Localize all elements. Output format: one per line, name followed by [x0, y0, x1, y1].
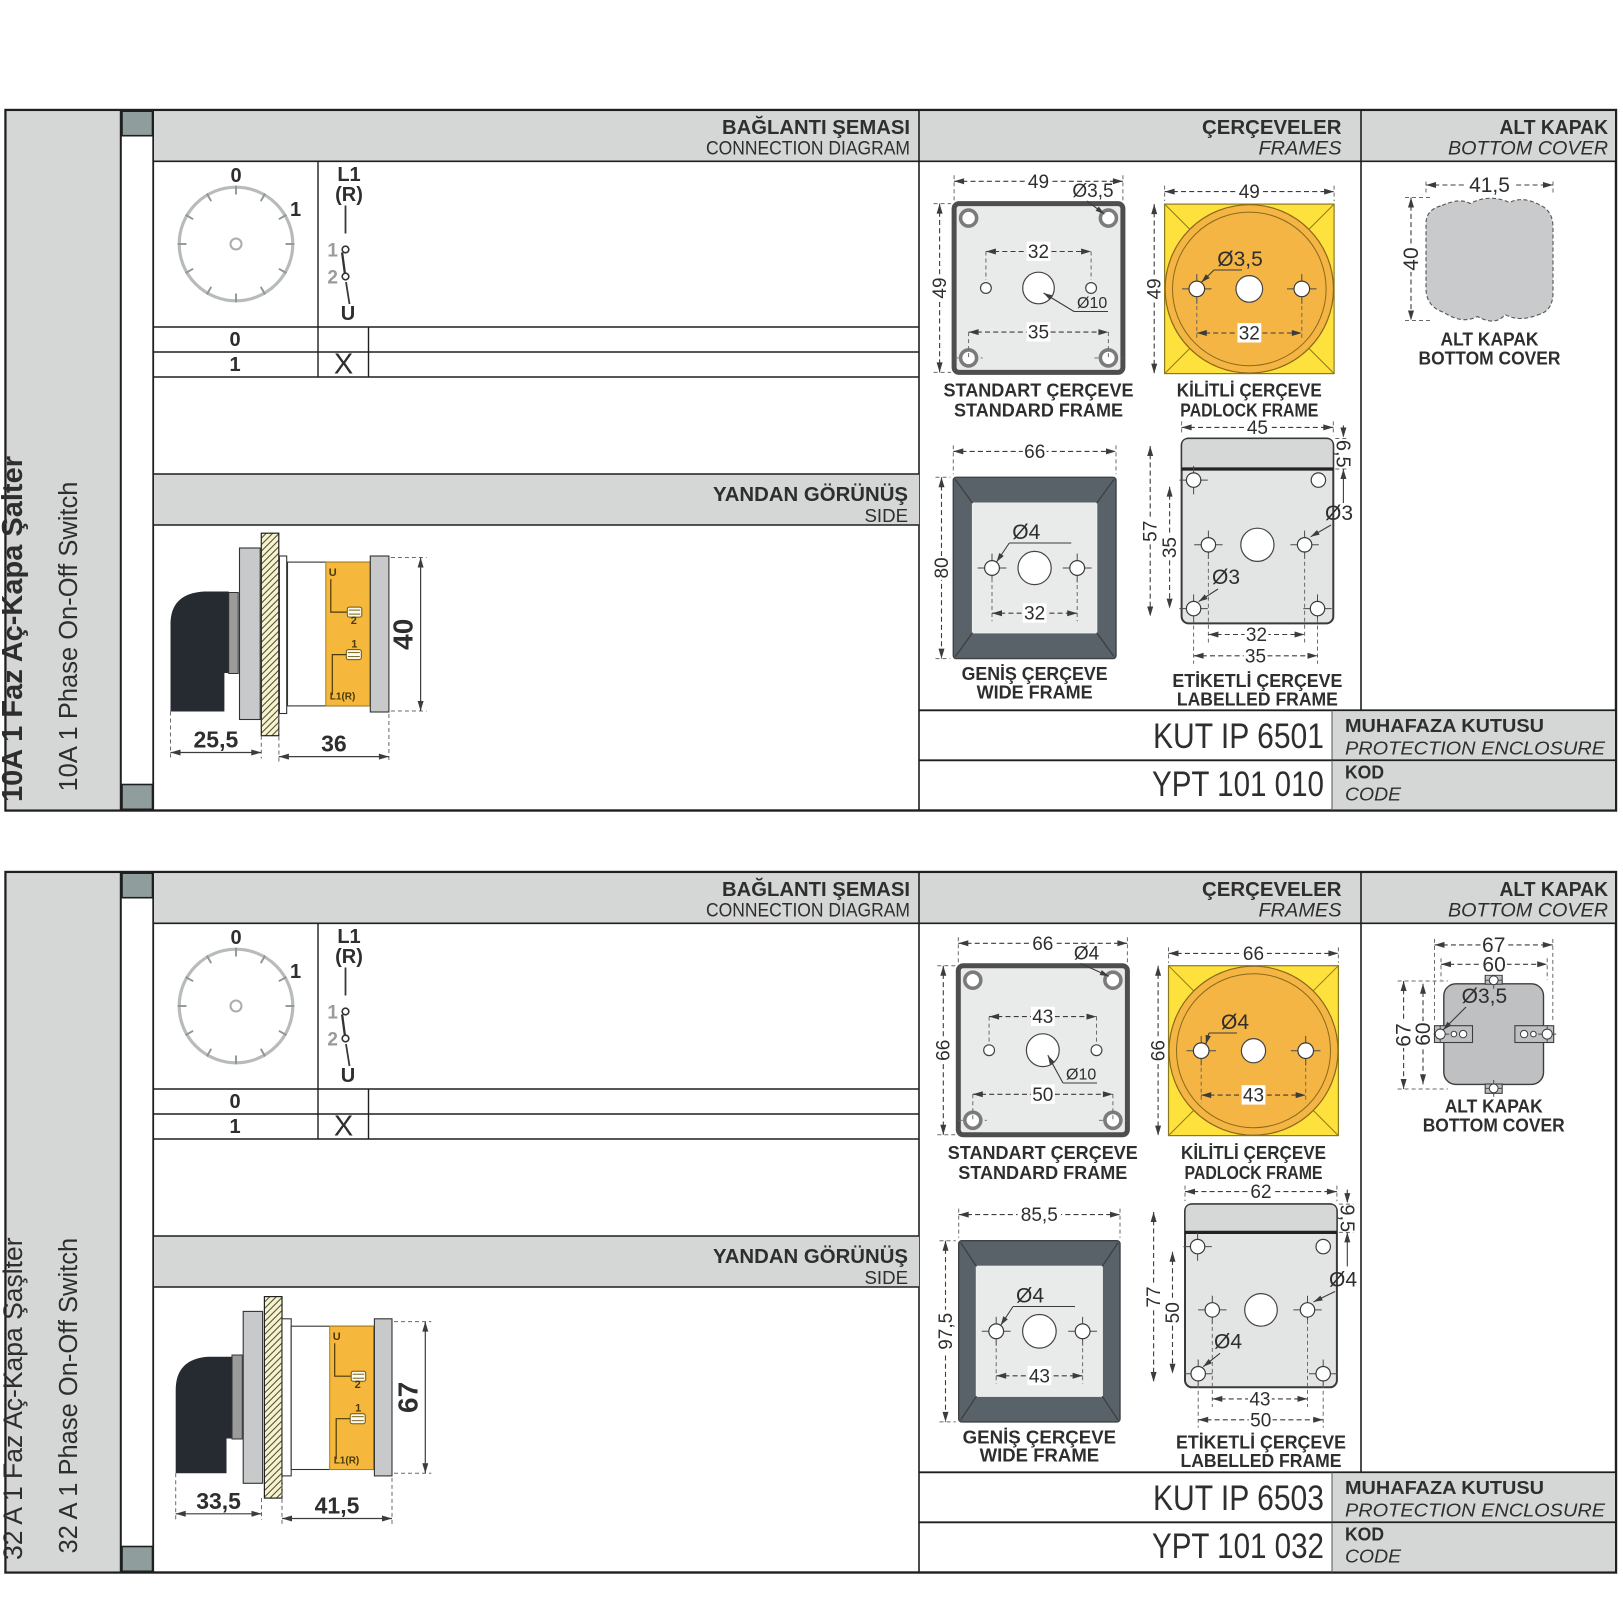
svg-text:STANDARD FRAME: STANDARD FRAME [954, 400, 1123, 420]
svg-text:L1(R): L1(R) [334, 1456, 360, 1467]
svg-text:77: 77 [1144, 1286, 1165, 1307]
svg-text:33,5: 33,5 [196, 1488, 241, 1514]
svg-text:66: 66 [934, 1040, 955, 1061]
svg-text:Ø4: Ø4 [1214, 1330, 1242, 1353]
svg-text:40: 40 [388, 619, 419, 650]
svg-text:PADLOCK FRAME: PADLOCK FRAME [1185, 1163, 1323, 1183]
svg-text:STANDART ÇERÇEVE: STANDART ÇERÇEVE [948, 1143, 1138, 1163]
svg-text:LABELLED FRAME: LABELLED FRAME [1177, 690, 1338, 710]
svg-text:2: 2 [327, 268, 338, 289]
svg-text:43: 43 [1032, 1007, 1053, 1028]
svg-text:1: 1 [290, 961, 301, 983]
svg-text:0: 0 [229, 1091, 240, 1113]
svg-text:YANDAN GÖRÜNÜŞ: YANDAN GÖRÜNÜŞ [713, 1245, 908, 1268]
svg-text:CONNECTION DIAGRAM: CONNECTION DIAGRAM [706, 138, 910, 159]
svg-text:41,5: 41,5 [315, 1493, 360, 1519]
svg-text:60: 60 [1412, 1022, 1435, 1045]
svg-text:Ø3,5: Ø3,5 [1462, 985, 1508, 1008]
svg-text:50: 50 [1250, 1410, 1271, 1431]
svg-text:35: 35 [1245, 646, 1266, 667]
svg-text:MUHAFAZA KUTUSU: MUHAFAZA KUTUSU [1345, 1478, 1544, 1498]
svg-text:35: 35 [1160, 537, 1181, 558]
svg-text:Ø4: Ø4 [1016, 1285, 1044, 1308]
svg-text:1: 1 [229, 354, 240, 376]
svg-text:YANDAN GÖRÜNÜŞ: YANDAN GÖRÜNÜŞ [713, 483, 908, 506]
svg-text:10A 1 Phase On-Off Switch: 10A 1 Phase On-Off Switch [55, 482, 83, 792]
svg-text:0: 0 [229, 329, 240, 351]
svg-text:YPT 101 010: YPT 101 010 [1152, 765, 1324, 804]
svg-text:0: 0 [230, 927, 241, 949]
svg-text:0: 0 [230, 165, 241, 187]
svg-text:25,5: 25,5 [194, 727, 239, 753]
svg-text:45: 45 [1247, 418, 1268, 439]
svg-text:9,5: 9,5 [1335, 1204, 1357, 1232]
svg-text:LABELLED FRAME: LABELLED FRAME [1181, 1451, 1342, 1471]
svg-text:32: 32 [1024, 604, 1045, 625]
svg-text:SIDE: SIDE [865, 1268, 909, 1288]
svg-text:GENİŞ ÇERÇEVE: GENİŞ ÇERÇEVE [962, 664, 1108, 684]
svg-text:32: 32 [1239, 324, 1260, 345]
svg-text:KİLİTLİ ÇERÇEVE: KİLİTLİ ÇERÇEVE [1177, 381, 1322, 401]
svg-text:(R): (R) [335, 946, 363, 968]
svg-text:Ø10: Ø10 [1066, 1067, 1096, 1084]
svg-text:66: 66 [1149, 1040, 1170, 1061]
svg-text:STANDARD FRAME: STANDARD FRAME [958, 1163, 1127, 1183]
svg-text:32: 32 [1246, 625, 1267, 646]
svg-text:X: X [334, 1111, 353, 1143]
svg-text:2: 2 [355, 1379, 361, 1391]
svg-text:KUT IP 6503: KUT IP 6503 [1153, 1479, 1324, 1518]
svg-text:BOTTOM COVER: BOTTOM COVER [1448, 900, 1608, 921]
svg-text:MUHAFAZA KUTUSU: MUHAFAZA KUTUSU [1345, 716, 1544, 736]
svg-text:KUT IP 6501: KUT IP 6501 [1153, 717, 1324, 756]
svg-text:WIDE FRAME: WIDE FRAME [980, 1446, 1100, 1466]
svg-text:1: 1 [351, 639, 357, 651]
svg-text:Ø4: Ø4 [1221, 1011, 1249, 1034]
svg-text:66: 66 [1024, 442, 1045, 463]
svg-text:32: 32 [1028, 242, 1049, 263]
svg-text:FRAMES: FRAMES [1259, 900, 1342, 921]
svg-text:49: 49 [1145, 278, 1166, 299]
svg-text:X: X [334, 349, 353, 381]
svg-text:PROTECTION ENCLOSURE: PROTECTION ENCLOSURE [1345, 1501, 1606, 1521]
svg-text:Ø3: Ø3 [1212, 566, 1240, 589]
svg-text:10A 1 Faz Aç-Kapa Şalter: 10A 1 Faz Aç-Kapa Şalter [0, 456, 29, 802]
svg-text:U: U [329, 567, 337, 579]
svg-text:KİLİTLİ ÇERÇEVE: KİLİTLİ ÇERÇEVE [1181, 1143, 1326, 1163]
svg-text:ETİKETLİ ÇERÇEVE: ETİKETLİ ÇERÇEVE [1176, 1433, 1346, 1453]
svg-text:97,5: 97,5 [936, 1313, 957, 1350]
svg-text:32 A 1 Phase On-Off Switch: 32 A 1 Phase On-Off Switch [55, 1238, 83, 1554]
svg-text:62: 62 [1250, 1182, 1271, 1203]
svg-text:ALT KAPAK: ALT KAPAK [1500, 878, 1609, 901]
svg-text:36: 36 [321, 731, 347, 757]
svg-text:U: U [341, 303, 355, 325]
svg-text:CODE: CODE [1345, 785, 1402, 805]
svg-text:L1: L1 [337, 164, 360, 186]
svg-text:Ø3,5: Ø3,5 [1072, 181, 1113, 202]
svg-text:L1: L1 [337, 926, 360, 948]
svg-text:ETİKETLİ ÇERÇEVE: ETİKETLİ ÇERÇEVE [1172, 671, 1342, 691]
svg-text:GENİŞ ÇERÇEVE: GENİŞ ÇERÇEVE [963, 1428, 1117, 1448]
svg-text:CODE: CODE [1345, 1547, 1402, 1567]
svg-text:67: 67 [392, 1382, 423, 1413]
svg-text:57: 57 [1141, 521, 1162, 542]
svg-text:Ø10: Ø10 [1077, 295, 1107, 312]
svg-text:WIDE FRAME: WIDE FRAME [977, 682, 1093, 702]
svg-text:U: U [333, 1331, 341, 1343]
svg-text:YPT 101 032: YPT 101 032 [1152, 1527, 1324, 1566]
svg-text:KOD: KOD [1345, 1525, 1384, 1545]
svg-text:66: 66 [1032, 934, 1053, 955]
svg-text:(R): (R) [335, 184, 363, 206]
svg-text:U: U [341, 1065, 355, 1087]
svg-text:1: 1 [327, 241, 338, 262]
svg-text:ÇERÇEVELER: ÇERÇEVELER [1202, 878, 1342, 901]
svg-text:Ø4: Ø4 [1329, 1269, 1357, 1292]
svg-text:49: 49 [930, 277, 951, 298]
svg-text:50: 50 [1163, 1302, 1184, 1323]
svg-text:6,5: 6,5 [1331, 440, 1353, 468]
svg-text:41,5: 41,5 [1469, 174, 1510, 197]
svg-text:BAĞLANTI ŞEMASI: BAĞLANTI ŞEMASI [722, 877, 910, 901]
svg-text:43: 43 [1029, 1366, 1050, 1387]
svg-text:80: 80 [932, 557, 953, 578]
svg-text:L1(R): L1(R) [330, 692, 356, 703]
svg-text:43: 43 [1243, 1086, 1264, 1107]
svg-text:50: 50 [1032, 1085, 1053, 1106]
svg-text:ALT KAPAK: ALT KAPAK [1500, 116, 1609, 139]
svg-text:60: 60 [1482, 953, 1505, 976]
svg-text:2: 2 [327, 1030, 338, 1051]
svg-text:1: 1 [327, 1003, 338, 1024]
svg-text:Ø4: Ø4 [1074, 944, 1100, 965]
svg-text:85,5: 85,5 [1021, 1205, 1058, 1226]
svg-text:STANDART ÇERÇEVE: STANDART ÇERÇEVE [944, 381, 1134, 401]
svg-text:Ø4: Ø4 [1012, 521, 1040, 544]
svg-text:CONNECTION DIAGRAM: CONNECTION DIAGRAM [706, 900, 910, 921]
svg-text:Ø3,5: Ø3,5 [1217, 248, 1263, 271]
svg-text:ALT KAPAK: ALT KAPAK [1445, 1097, 1543, 1117]
svg-text:ÇERÇEVELER: ÇERÇEVELER [1202, 116, 1342, 139]
svg-text:BOTTOM COVER: BOTTOM COVER [1448, 138, 1608, 159]
svg-text:43: 43 [1249, 1389, 1270, 1410]
svg-text:FRAMES: FRAMES [1259, 138, 1342, 159]
svg-text:49: 49 [1239, 182, 1260, 203]
svg-text:Ø3: Ø3 [1325, 502, 1353, 525]
svg-text:SIDE: SIDE [865, 506, 909, 526]
svg-text:40: 40 [1400, 247, 1423, 270]
svg-text:2: 2 [351, 615, 357, 627]
svg-text:BAĞLANTI ŞEMASI: BAĞLANTI ŞEMASI [722, 115, 910, 139]
svg-text:1: 1 [229, 1116, 240, 1138]
svg-text:PROTECTION ENCLOSURE: PROTECTION ENCLOSURE [1345, 739, 1606, 759]
svg-text:BOTTOM COVER: BOTTOM COVER [1419, 349, 1561, 369]
svg-text:KOD: KOD [1345, 763, 1384, 783]
svg-text:66: 66 [1243, 944, 1264, 965]
svg-text:1: 1 [355, 1403, 361, 1415]
svg-text:1: 1 [290, 199, 301, 221]
svg-text:32 A 1 Faz Aç-Kapa Şaşlter: 32 A 1 Faz Aç-Kapa Şaşlter [0, 1237, 28, 1560]
svg-text:BOTTOM COVER: BOTTOM COVER [1423, 1115, 1565, 1135]
svg-text:35: 35 [1028, 323, 1049, 344]
svg-text:49: 49 [1028, 172, 1049, 193]
svg-text:ALT KAPAK: ALT KAPAK [1441, 330, 1539, 350]
